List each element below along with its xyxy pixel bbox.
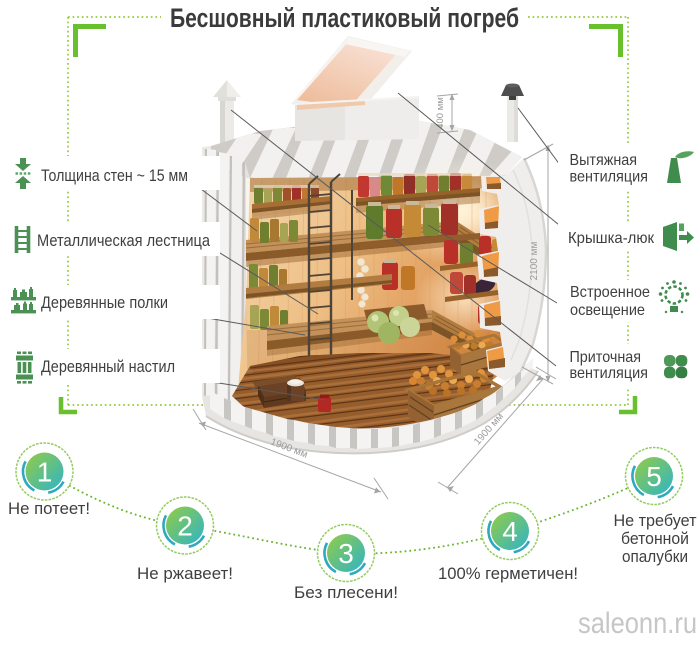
svg-text:2: 2 bbox=[177, 511, 193, 542]
svg-text:Металлическая лестница: Металлическая лестница bbox=[37, 231, 210, 250]
svg-text:опалубки: опалубки bbox=[622, 547, 688, 566]
svg-text:100% герметичен!: 100% герметичен! bbox=[438, 564, 578, 583]
svg-text:вентиляция: вентиляция bbox=[570, 365, 649, 382]
svg-text:Деревянные полки: Деревянные полки bbox=[41, 293, 168, 312]
svg-text:Без плесени!: Без плесени! bbox=[294, 583, 398, 602]
svg-text:Крышка-люк: Крышка-люк bbox=[568, 230, 655, 247]
svg-text:5: 5 bbox=[646, 461, 662, 492]
svg-text:Не требует: Не требует bbox=[614, 511, 697, 530]
svg-text:2100 мм: 2100 мм bbox=[529, 241, 540, 280]
svg-text:Встроенное: Встроенное bbox=[570, 284, 650, 301]
svg-text:освещение: освещение bbox=[570, 302, 645, 319]
svg-text:Не ржавеет!: Не ржавеет! bbox=[137, 564, 233, 583]
svg-text:вентиляция: вентиляция bbox=[570, 169, 649, 186]
svg-text:saleonn.ru: saleonn.ru bbox=[578, 607, 697, 640]
svg-text:Деревянный настил: Деревянный настил bbox=[41, 357, 175, 376]
svg-text:Бесшовный пластиковый погреб: Бесшовный пластиковый погреб bbox=[170, 3, 519, 33]
svg-text:4: 4 bbox=[502, 516, 518, 547]
svg-text:1: 1 bbox=[37, 457, 53, 488]
svg-text:Приточная: Приточная bbox=[570, 349, 642, 366]
svg-text:3: 3 bbox=[338, 538, 354, 569]
svg-text:Толщина стен ~ 15 мм: Толщина стен ~ 15 мм bbox=[41, 166, 188, 185]
svg-text:бетонной: бетонной bbox=[621, 529, 689, 548]
svg-text:Вытяжная: Вытяжная bbox=[570, 152, 638, 169]
svg-text:Не потеет!: Не потеет! bbox=[8, 499, 90, 518]
